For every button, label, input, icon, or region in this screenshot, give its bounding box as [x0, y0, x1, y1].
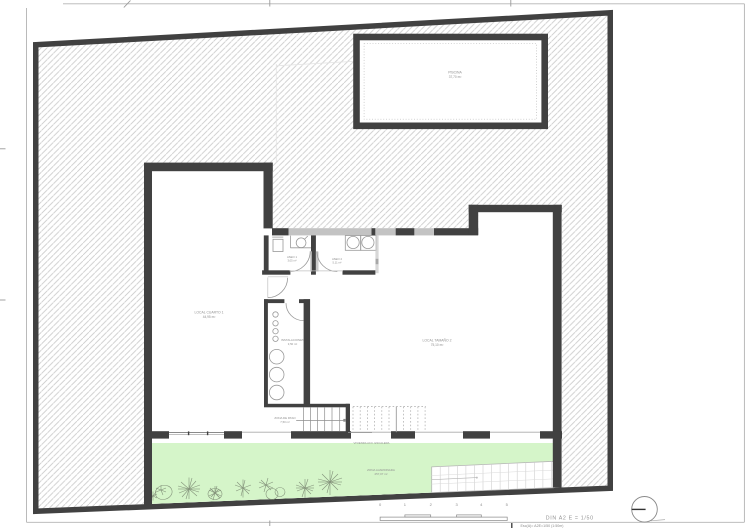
svg-text:ASEO 1: ASEO 1: [287, 255, 298, 259]
svg-text:37,70 m²: 37,70 m²: [449, 75, 462, 79]
svg-text:5,11 m²: 5,11 m²: [333, 260, 342, 264]
svg-text:75,10 m²: 75,10 m²: [431, 343, 444, 347]
svg-text:ASEO 2: ASEO 2: [332, 257, 343, 261]
svg-text:44,95 m²: 44,95 m²: [203, 315, 216, 319]
svg-text:Esc(A)= A2E=1/50 (1:50m): Esc(A)= A2E=1/50 (1:50m): [521, 524, 564, 528]
svg-text:LOCAL CUARTO 1: LOCAL CUARTO 1: [195, 311, 224, 315]
svg-text:DIN A2 E = 1/50: DIN A2 E = 1/50: [546, 515, 594, 521]
svg-text:PISCINA: PISCINA: [448, 71, 462, 75]
svg-text:257,07 m²: 257,07 m²: [374, 472, 387, 476]
svg-text:VIVIENDA ACC. ESCALERA: VIVIENDA ACC. ESCALERA: [354, 441, 390, 445]
svg-text:7,50 m²: 7,50 m²: [280, 420, 290, 424]
svg-text:3,50 m²: 3,50 m²: [288, 342, 298, 346]
svg-text:LOCAL TAMAÑO 2: LOCAL TAMAÑO 2: [423, 338, 452, 343]
svg-text:3,05 m²: 3,05 m²: [287, 258, 296, 262]
